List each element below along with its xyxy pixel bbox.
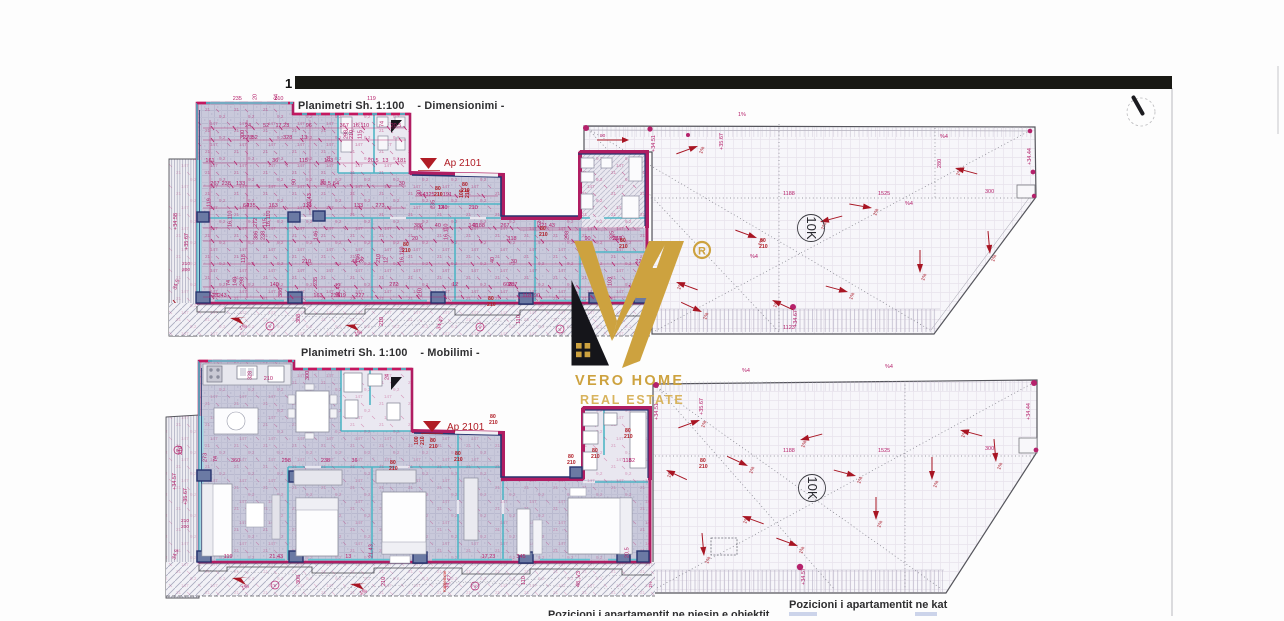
- svg-text:+34.67: +34.67: [793, 310, 799, 327]
- svg-text:21,43: 21,43: [336, 283, 342, 297]
- svg-text:163: 163: [269, 203, 278, 209]
- svg-text:119: 119: [207, 198, 213, 207]
- svg-text:210: 210: [699, 464, 708, 470]
- svg-text:Planimetri Sh. 1:100 - Mobi: Planimetri Sh. 1:100 - Mobilimi -: [301, 347, 480, 359]
- svg-text:16,110: 16,110: [443, 224, 449, 240]
- svg-text:10K: 10K: [804, 216, 819, 239]
- svg-text:210: 210: [389, 466, 398, 472]
- svg-text:386: 386: [278, 288, 284, 297]
- svg-text:119: 119: [224, 554, 233, 560]
- svg-text:16,110: 16,110: [266, 211, 272, 227]
- svg-text:1525: 1525: [878, 448, 890, 454]
- svg-text:238: 238: [260, 231, 266, 240]
- svg-text:+35.67: +35.67: [719, 133, 725, 150]
- svg-text:13: 13: [345, 554, 351, 560]
- svg-text:21,43: 21,43: [307, 193, 313, 207]
- svg-text:367: 367: [340, 123, 349, 129]
- svg-text:36: 36: [360, 257, 366, 263]
- svg-text:24: 24: [320, 179, 326, 185]
- svg-text:16,110: 16,110: [228, 211, 234, 227]
- svg-text:161: 161: [205, 158, 214, 164]
- svg-text:210: 210: [469, 205, 478, 211]
- svg-text:210: 210: [454, 457, 463, 463]
- svg-text:Kamenxne: Kamenxne: [442, 570, 447, 592]
- svg-text:1: 1: [285, 76, 292, 91]
- svg-text:325: 325: [609, 231, 615, 240]
- svg-text:1%: 1%: [738, 112, 746, 118]
- svg-text:210: 210: [759, 244, 768, 250]
- svg-text:74: 74: [326, 156, 332, 162]
- svg-text:V: V: [268, 324, 271, 329]
- svg-text:40: 40: [490, 257, 496, 263]
- svg-text:210: 210: [264, 376, 273, 382]
- svg-text:272: 272: [253, 218, 259, 227]
- svg-text:1%: 1%: [648, 581, 653, 588]
- svg-text:235: 235: [430, 200, 436, 209]
- svg-text:298: 298: [240, 277, 246, 286]
- svg-text:1188: 1188: [783, 448, 795, 454]
- svg-text:118: 118: [522, 293, 531, 299]
- svg-text:V: V: [273, 583, 276, 588]
- svg-text:52: 52: [263, 123, 269, 129]
- svg-text:210: 210: [349, 130, 355, 139]
- svg-text:20,5: 20,5: [624, 547, 630, 558]
- svg-text:272: 272: [389, 282, 398, 288]
- svg-text:21,43: 21,43: [213, 293, 227, 299]
- svg-text:115: 115: [299, 158, 308, 164]
- svg-text:118: 118: [241, 254, 247, 263]
- svg-text:Ap 2101: Ap 2101: [447, 422, 485, 433]
- svg-text:386: 386: [414, 223, 423, 229]
- svg-text:227: 227: [355, 293, 364, 299]
- svg-text:R: R: [698, 246, 706, 258]
- svg-text:+35.67: +35.67: [699, 398, 705, 415]
- svg-text:300: 300: [305, 371, 311, 380]
- svg-text:12: 12: [452, 282, 458, 288]
- svg-text:13: 13: [301, 135, 307, 141]
- svg-text:273: 273: [375, 203, 384, 209]
- svg-text:140: 140: [438, 205, 447, 211]
- svg-text:VERO HOME: VERO HOME: [575, 373, 684, 389]
- svg-text:300: 300: [985, 189, 994, 195]
- svg-text:140: 140: [270, 282, 279, 288]
- svg-text:17,23: 17,23: [482, 554, 496, 560]
- svg-text:16,110: 16,110: [353, 123, 369, 129]
- svg-text:210: 210: [434, 192, 443, 198]
- svg-text:52: 52: [629, 458, 635, 464]
- svg-text:30: 30: [417, 190, 423, 196]
- svg-text:36: 36: [272, 158, 278, 164]
- svg-text:17,23: 17,23: [276, 123, 290, 129]
- svg-text:Planimetri Sh. 1:100 - Dime: Planimetri Sh. 1:100 - Dimensionimi -: [298, 100, 505, 112]
- svg-text:308: 308: [296, 314, 302, 323]
- svg-text:+34.44: +34.44: [1026, 403, 1032, 420]
- svg-text:10K: 10K: [805, 476, 820, 499]
- svg-text:210: 210: [402, 248, 411, 254]
- svg-text:210: 210: [381, 577, 387, 586]
- svg-text:235: 235: [313, 277, 319, 286]
- svg-text:133: 133: [236, 181, 245, 187]
- svg-text:24: 24: [245, 123, 251, 129]
- svg-text:210: 210: [619, 244, 628, 250]
- svg-text:20,5: 20,5: [391, 123, 402, 129]
- svg-text:267: 267: [210, 181, 219, 187]
- svg-text:110: 110: [521, 576, 527, 585]
- svg-text:360: 360: [231, 458, 240, 464]
- svg-text:20: 20: [253, 94, 259, 100]
- svg-text:12: 12: [383, 257, 389, 263]
- svg-text:20,5: 20,5: [368, 158, 379, 164]
- svg-text:74: 74: [226, 280, 232, 286]
- svg-text:300: 300: [240, 130, 246, 139]
- svg-text:Pozicioni i apartamentit ne pj: Pozicioni i apartamentit ne pjesin e obj…: [548, 609, 770, 616]
- svg-text:90: 90: [292, 179, 298, 185]
- svg-text:210: 210: [624, 434, 633, 440]
- svg-text:210: 210: [487, 302, 496, 308]
- svg-text:210: 210: [376, 254, 382, 263]
- svg-text:21,43: 21,43: [369, 544, 375, 558]
- svg-text:20: 20: [412, 236, 418, 242]
- svg-text:103: 103: [607, 277, 613, 286]
- svg-text:V: V: [473, 584, 476, 589]
- svg-text:210: 210: [539, 232, 548, 238]
- svg-text:%4: %4: [750, 254, 758, 260]
- svg-text:13: 13: [382, 158, 388, 164]
- svg-text:146: 146: [313, 231, 319, 240]
- svg-text:287: 287: [508, 282, 517, 288]
- svg-text:1525: 1525: [878, 191, 890, 197]
- svg-text:235: 235: [233, 96, 242, 102]
- svg-text:+34.44: +34.44: [1027, 148, 1033, 165]
- svg-text:133: 133: [354, 203, 363, 209]
- svg-text:210: 210: [465, 189, 471, 198]
- svg-text:181: 181: [397, 158, 406, 164]
- svg-text:1188: 1188: [473, 223, 485, 229]
- svg-text:48,,V3: 48,,V3: [576, 571, 582, 587]
- svg-text:REAL ESTATE: REAL ESTATE: [580, 393, 685, 407]
- svg-text:96: 96: [306, 123, 312, 129]
- svg-text:210: 210: [591, 454, 600, 460]
- svg-text:24: 24: [385, 374, 391, 380]
- svg-text:%4: %4: [940, 134, 948, 140]
- svg-text:345: 345: [516, 554, 525, 560]
- svg-text:110: 110: [516, 315, 522, 324]
- svg-text:308: 308: [296, 575, 302, 584]
- svg-text:64: 64: [273, 94, 279, 100]
- svg-text:90: 90: [534, 293, 540, 299]
- svg-text:273: 273: [202, 453, 208, 462]
- svg-text:328: 328: [283, 135, 292, 141]
- svg-text:298: 298: [565, 231, 571, 240]
- svg-text:30: 30: [399, 181, 405, 187]
- svg-text:+34.51: +34.51: [651, 135, 657, 152]
- svg-text:267: 267: [500, 223, 509, 229]
- svg-text:280: 280: [937, 159, 943, 168]
- svg-text:210: 210: [489, 420, 498, 426]
- svg-text:210: 210: [418, 288, 424, 297]
- svg-text:64: 64: [333, 181, 339, 187]
- svg-text:163: 163: [313, 293, 322, 299]
- svg-text:210: 210: [302, 259, 311, 265]
- svg-text:298: 298: [282, 458, 291, 464]
- svg-text:40: 40: [435, 223, 441, 229]
- svg-text:210: 210: [429, 444, 438, 450]
- svg-text:V: V: [478, 325, 481, 330]
- svg-text:%4: %4: [885, 364, 893, 370]
- svg-text:74: 74: [379, 121, 385, 127]
- svg-text:119: 119: [367, 96, 376, 102]
- svg-text:52: 52: [252, 135, 258, 141]
- svg-text:36: 36: [351, 458, 357, 464]
- svg-text:V: V: [558, 327, 561, 332]
- svg-text:%4: %4: [742, 368, 750, 374]
- svg-text:+34.57: +34.57: [801, 568, 807, 585]
- svg-text:118: 118: [508, 236, 517, 242]
- svg-text:90: 90: [600, 133, 606, 139]
- svg-text:386: 386: [254, 231, 260, 240]
- svg-text:30: 30: [511, 259, 517, 265]
- svg-text:235: 235: [247, 203, 256, 209]
- svg-text:%4: %4: [905, 201, 913, 207]
- svg-text:238: 238: [222, 181, 231, 187]
- svg-text:328: 328: [247, 371, 253, 380]
- svg-text:74: 74: [213, 456, 219, 462]
- svg-text:Ap 2101: Ap 2101: [444, 158, 482, 169]
- svg-text:210: 210: [379, 317, 385, 326]
- svg-text:238: 238: [321, 458, 330, 464]
- svg-text:210: 210: [420, 436, 426, 445]
- svg-text:300: 300: [985, 446, 994, 452]
- svg-text:210: 210: [567, 460, 576, 466]
- svg-text:1188: 1188: [783, 191, 795, 197]
- svg-text:115: 115: [358, 130, 364, 139]
- svg-text:191: 191: [443, 192, 452, 198]
- svg-text:Pozicioni i apartamentit ne ka: Pozicioni i apartamentit ne kat: [789, 599, 948, 611]
- svg-text:21,43: 21,43: [269, 554, 283, 560]
- svg-text:140: 140: [232, 277, 238, 286]
